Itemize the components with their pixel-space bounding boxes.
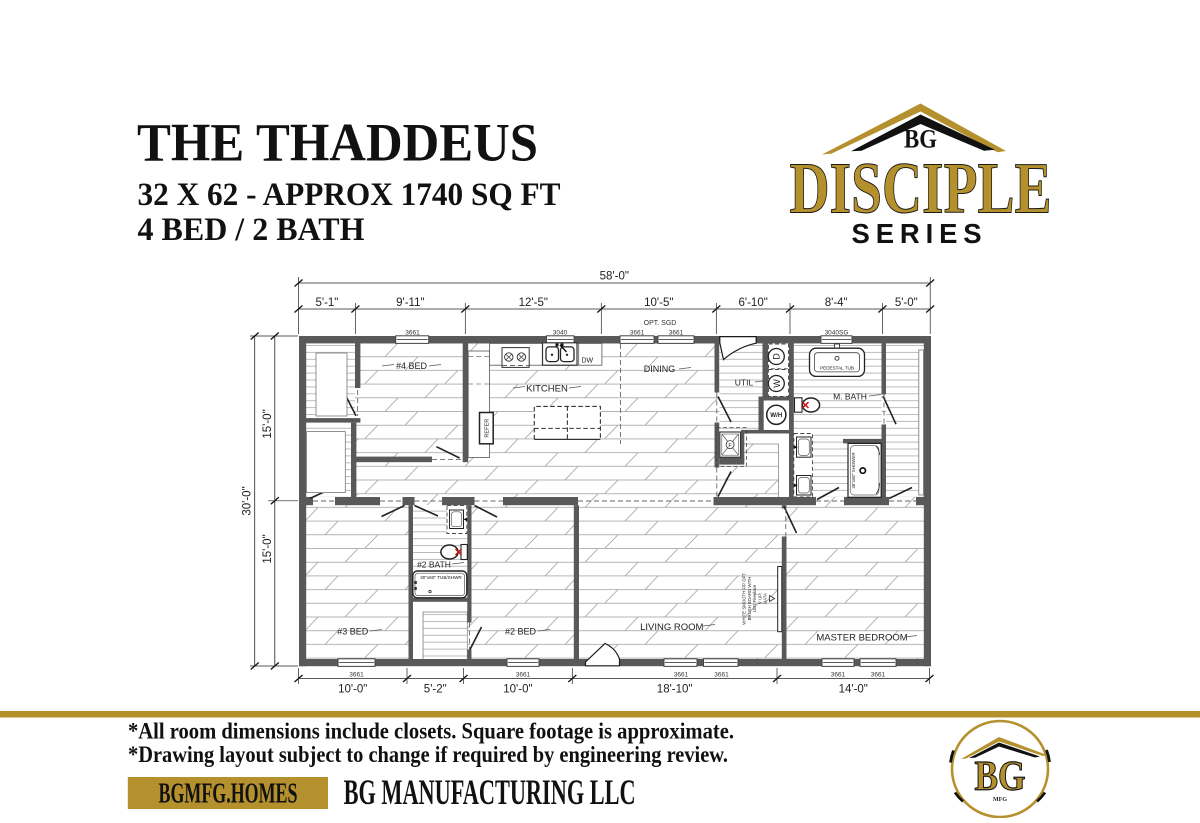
svg-text:3661: 3661 [871, 672, 886, 679]
svg-text:MASTER BEDROOM: MASTER BEDROOM [816, 632, 907, 643]
svg-text:9'-11": 9'-11" [396, 297, 424, 309]
svg-text:KITCHEN: KITCHEN [526, 383, 568, 394]
svg-text:5' UP!: 5' UP! [757, 593, 762, 605]
svg-text:4 BED / 2 BATH: 4 BED / 2 BATH [138, 212, 365, 248]
svg-text:12'-5": 12'-5" [519, 297, 548, 309]
svg-text:D: D [772, 353, 782, 360]
svg-text:#2 BED: #2 BED [505, 627, 537, 637]
svg-text:SERIES: SERIES [852, 218, 988, 249]
svg-text:BRUSH BOARD WITH: BRUSH BOARD WITH [747, 577, 752, 621]
svg-text:3661: 3661 [669, 330, 684, 337]
svg-text:*Drawing layout subject to cha: *Drawing layout subject to change if req… [128, 742, 728, 767]
svg-text:UTIL: UTIL [735, 378, 754, 388]
svg-text:10'-5": 10'-5" [644, 297, 673, 309]
svg-text:M. BATH: M. BATH [833, 392, 867, 402]
svg-text:3661: 3661 [630, 330, 645, 337]
svg-text:BG MANUFACTURING LLC: BG MANUFACTURING LLC [344, 772, 636, 812]
svg-text:10'-0": 10'-0" [338, 684, 367, 696]
svg-text:MFG: MFG [993, 797, 1007, 803]
svg-text:3661: 3661 [405, 330, 420, 337]
svg-text:6'-10": 6'-10" [739, 297, 768, 309]
svg-text:REFER: REFER [485, 419, 491, 438]
svg-text:58'-0": 58'-0" [600, 271, 629, 283]
svg-text:#2 BATH: #2 BATH [417, 560, 451, 570]
svg-text:DW: DW [581, 358, 593, 365]
svg-text:BG: BG [975, 754, 1026, 800]
svg-text:3040: 3040 [553, 330, 568, 337]
svg-text:10'-0": 10'-0" [503, 684, 532, 696]
svg-text:LED Fireplace: LED Fireplace [752, 584, 757, 612]
svg-text:5'-0": 5'-0" [895, 297, 918, 309]
svg-text:8'-4": 8'-4" [825, 297, 848, 309]
svg-text:W: W [772, 379, 782, 388]
svg-text:OPT. SGD: OPT. SGD [644, 320, 677, 327]
svg-text:*All room dimensions include c: *All room dimensions include closets. Sq… [128, 719, 734, 744]
svg-text:DATA: DATA [763, 593, 768, 604]
svg-text:3661: 3661 [714, 672, 729, 679]
svg-text:BGMFG.HOMES: BGMFG.HOMES [159, 778, 298, 810]
svg-text:36"x60" SHOWER: 36"x60" SHOWER [851, 452, 856, 488]
svg-text:15'-0": 15'-0" [262, 409, 274, 438]
svg-text:14'-0": 14'-0" [839, 684, 868, 696]
svg-text:5'-1": 5'-1" [315, 297, 338, 309]
svg-text:THE THADDEUS: THE THADDEUS [137, 113, 538, 173]
svg-text:DINING: DINING [644, 364, 676, 374]
svg-text:#4 BED: #4 BED [396, 361, 428, 371]
svg-text:30"x60" TUB/SHWR: 30"x60" TUB/SHWR [420, 575, 462, 580]
svg-text:3661: 3661 [674, 672, 689, 679]
svg-text:PEDESTAL TUB: PEDESTAL TUB [820, 366, 854, 371]
svg-text:3661: 3661 [831, 672, 846, 679]
svg-text:DISCIPLE: DISCIPLE [790, 148, 1052, 229]
svg-text:15'-0": 15'-0" [262, 534, 274, 563]
svg-text:18'-10": 18'-10" [657, 684, 693, 696]
svg-text:30'-0": 30'-0" [242, 486, 254, 515]
svg-text:#3 BED: #3 BED [337, 627, 369, 637]
svg-text:32 X 62 - APPROX 1740 SQ FT: 32 X 62 - APPROX 1740 SQ FT [138, 177, 561, 213]
svg-text:WHITE SMOOTH F/P OPT.: WHITE SMOOTH F/P OPT. [742, 572, 747, 624]
svg-text:LIVING ROOM: LIVING ROOM [640, 622, 703, 633]
svg-text:5'-2": 5'-2" [424, 684, 447, 696]
svg-text:3661: 3661 [349, 672, 364, 679]
svg-text:W/H: W/H [770, 412, 783, 419]
svg-text:3661: 3661 [516, 672, 531, 679]
svg-text:3040SG: 3040SG [825, 330, 849, 337]
